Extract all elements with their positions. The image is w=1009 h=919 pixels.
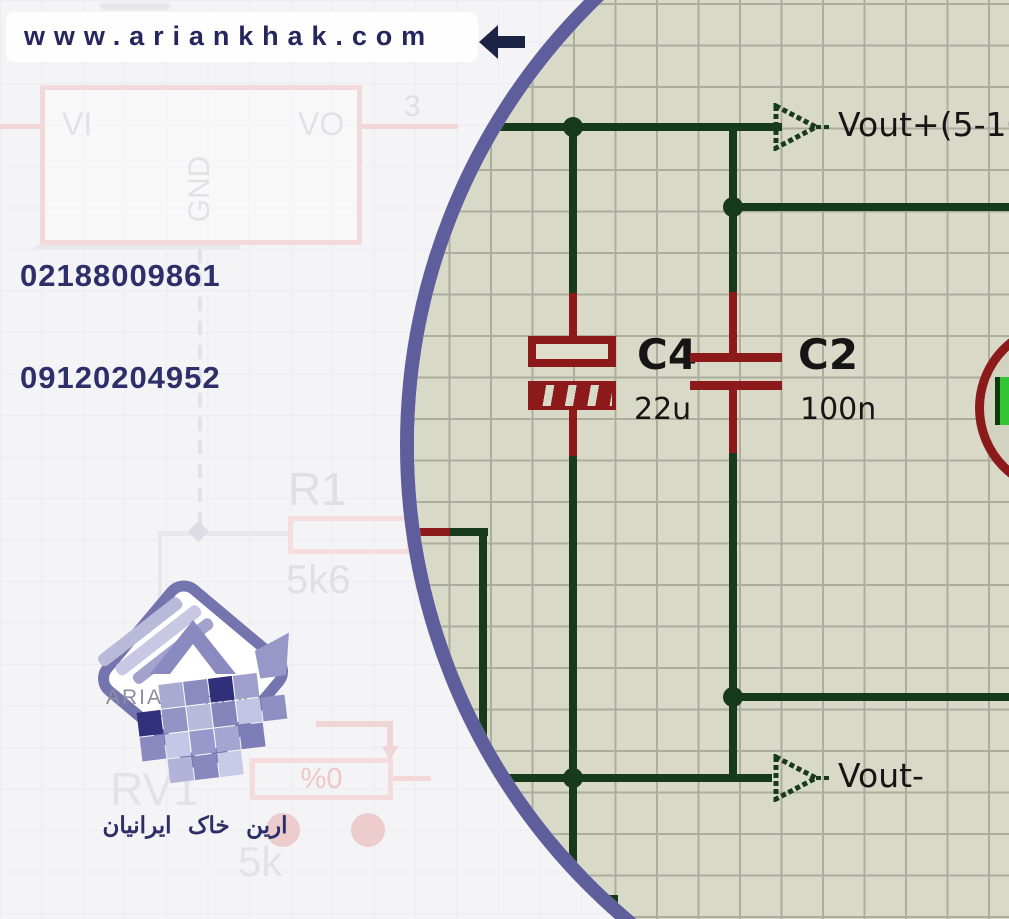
c2-pin [729,292,737,356]
wire-segment [729,203,1009,211]
wire-segment [600,895,618,903]
c2-bottom-plate [690,381,782,390]
regulator-pin-vi-label: VI [62,106,92,143]
arian-khak-logo-icon: ARIAN KHAK Iranian [68,578,318,808]
ghost-pad-dot [351,813,385,847]
c4-bottom-plate [528,381,616,410]
ghost-pot-wiper-arrow-icon [312,714,402,764]
c2-top-plate [690,353,782,362]
wire-segment [729,693,1009,701]
ghost-wire [0,124,42,129]
wire-segment [569,456,577,778]
c4-top-plate [528,336,616,367]
c4-ref-label: C4 [637,330,697,379]
phone-number-mobile: 09120204952 [20,360,221,396]
junction-dot [723,687,743,707]
junction-dot [723,197,743,217]
c4-value-label: 22u [634,392,691,427]
advert-canvas: VI VO GND 3 R1 5k6 RV1 %0 5k Vout+(5- [0,0,1009,919]
pot-value-label: 5k [238,838,282,886]
vout-minus-terminal-icon [772,754,832,802]
regulator-pin-vo-label: VO [298,106,344,143]
resistor-ref-label: R1 [288,462,347,516]
ghost-junction-dot [188,521,209,542]
c2-pin [729,390,737,453]
c2-ref-label: C2 [798,330,858,379]
zoomed-schematic: Vout+(5-16V) C4 22u C2 100n [400,0,1009,919]
regulator-pin-gnd-label: GND [183,139,217,239]
component-pin [418,528,450,536]
c4-pin [569,293,577,340]
back-arrow-icon [479,24,525,60]
vout-plus-label: Vout+(5-16V) [838,105,1009,144]
ghost-resistor-body [288,516,412,554]
persian-caption: ارین خاک ایرانیان [86,812,304,839]
ghost-wire [35,245,240,249]
wire-segment [569,127,577,293]
ghost-wire [158,531,288,536]
wire-segment [729,453,737,782]
magnifier-circle: Vout+(5-16V) C4 22u C2 100n [400,0,1009,919]
phone-number-landline: 02188009861 [20,258,221,294]
vout-minus-label: Vout- [838,756,924,795]
c2-value-label: 100n [800,392,876,427]
c4-pin [569,408,577,456]
faded-text-smudge [100,3,170,10]
wire-segment [479,774,772,782]
vout-plus-terminal-icon [772,103,832,151]
ghost-wire-dashed [198,440,202,532]
website-url: www.ariankhak.com [24,21,434,52]
wire-segment [569,778,577,910]
voltmeter-display [995,377,1009,425]
wire-segment [479,528,487,782]
